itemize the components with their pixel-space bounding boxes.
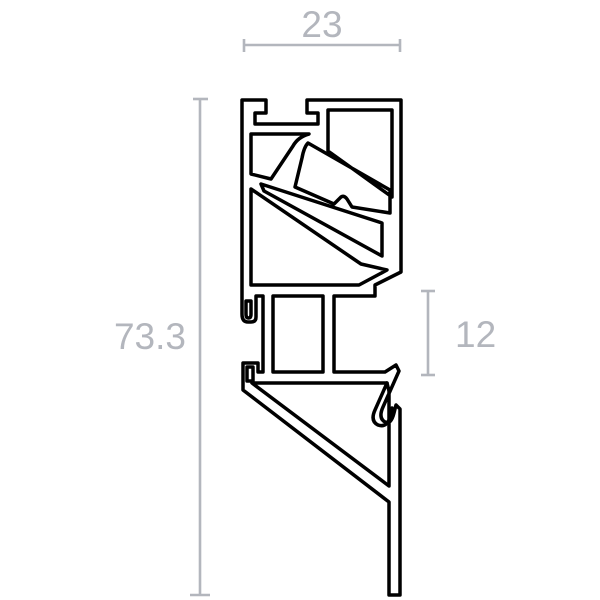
profile-drawing-svg: 23 73.3 12 [0, 0, 600, 600]
dimension-labels: 23 73.3 12 [114, 4, 496, 357]
dimension-width-label: 23 [301, 4, 342, 45]
profile-cross-section [242, 100, 401, 595]
drawing-canvas: 23 73.3 12 [0, 0, 600, 600]
dimension-height [190, 99, 210, 595]
dimension-right-gap-label: 12 [455, 314, 496, 355]
dimension-right-gap [421, 291, 435, 375]
dimension-height-label: 73.3 [114, 316, 186, 357]
profile-outline [242, 100, 401, 595]
